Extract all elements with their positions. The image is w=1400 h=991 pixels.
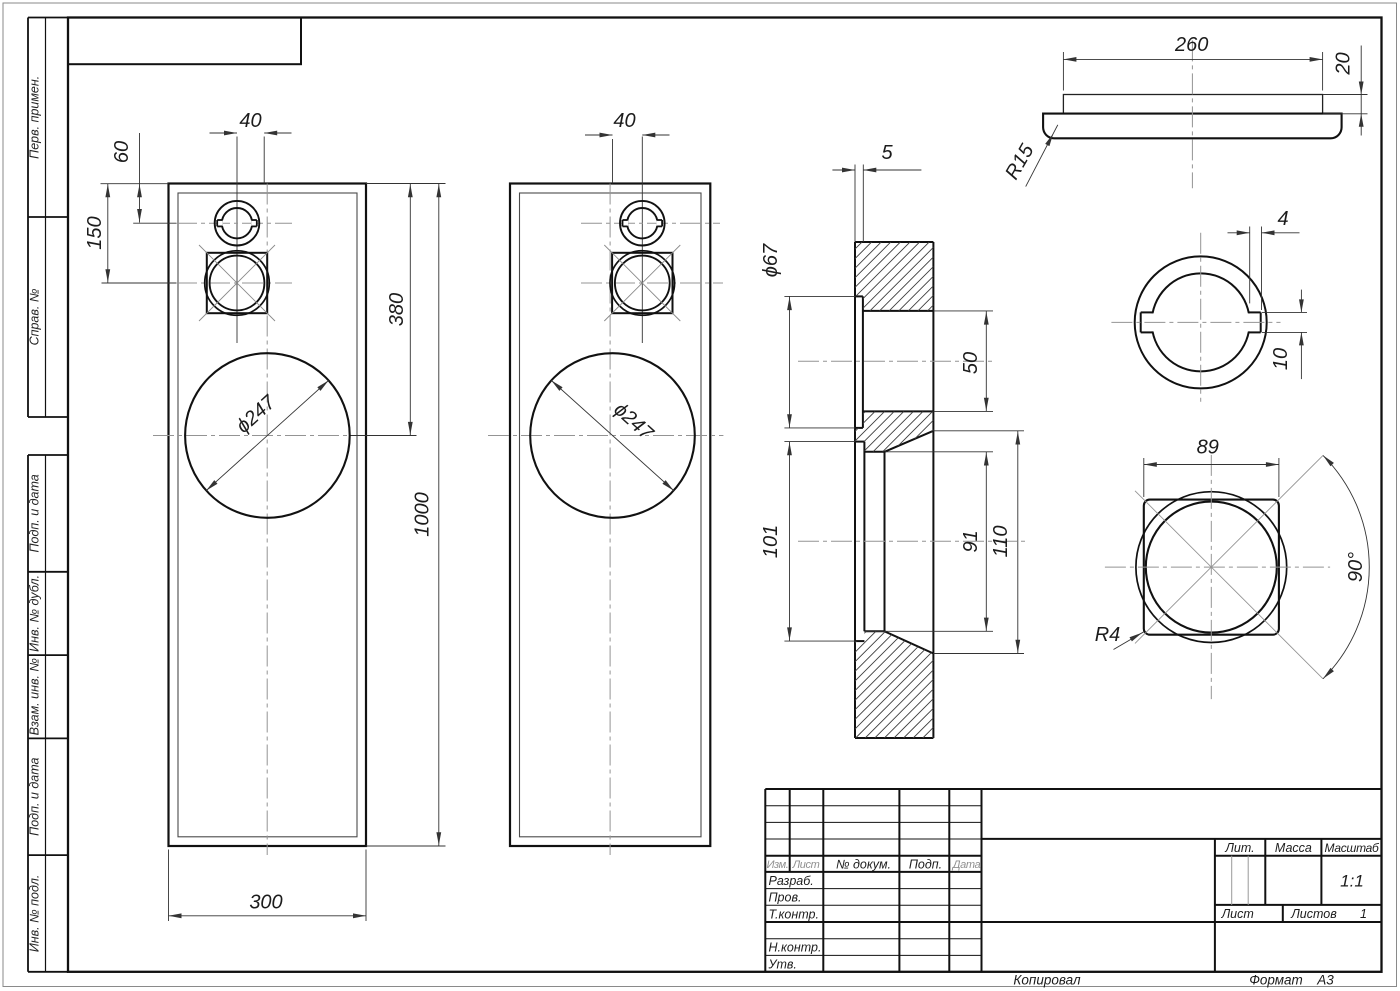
svg-text:R4: R4 [1095, 624, 1121, 646]
svg-text:Т.контр.: Т.контр. [769, 907, 819, 921]
svg-text:10: 10 [1270, 348, 1292, 370]
svg-text:Изм.: Изм. [767, 859, 789, 871]
svg-text:Перв. примен.: Перв. примен. [28, 76, 42, 159]
svg-text:Инв. № дубл.: Инв. № дубл. [28, 575, 42, 652]
svg-text:110: 110 [990, 525, 1012, 557]
svg-text:40: 40 [613, 110, 635, 132]
svg-text:89: 89 [1197, 437, 1219, 459]
svg-text:Подп. и дата: Подп. и дата [28, 758, 42, 836]
svg-text:Подп. и дата: Подп. и дата [28, 474, 42, 552]
svg-text:300: 300 [249, 892, 282, 914]
svg-text:Дата: Дата [951, 859, 981, 871]
svg-text:Лит.: Лит. [1224, 841, 1254, 855]
svg-text:Масса: Масса [1275, 841, 1312, 855]
svg-text:90°: 90° [1345, 552, 1367, 582]
svg-text:Масштаб: Масштаб [1325, 841, 1381, 855]
svg-text:40: 40 [239, 110, 261, 132]
svg-text:Подп.: Подп. [909, 857, 942, 871]
svg-text:60: 60 [111, 141, 133, 163]
svg-text:Лист: Лист [792, 859, 820, 871]
svg-text:150: 150 [84, 216, 106, 249]
svg-text:Разраб.: Разраб. [769, 874, 814, 888]
svg-text:101: 101 [760, 525, 782, 558]
svg-text:Справ. №: Справ. № [28, 288, 42, 345]
svg-text:Копировал: Копировал [1013, 973, 1081, 988]
svg-text:50: 50 [960, 352, 982, 374]
svg-text:Н.контр.: Н.контр. [769, 941, 822, 955]
svg-text:1000: 1000 [412, 492, 434, 537]
svg-text:91: 91 [960, 530, 982, 552]
svg-text:380: 380 [386, 293, 408, 326]
svg-text:Инв. № подл.: Инв. № подл. [28, 875, 42, 953]
svg-text:Формат: Формат [1249, 973, 1303, 988]
svg-text:Взам. инв. №: Взам. инв. № [28, 658, 42, 736]
svg-text:1: 1 [1360, 907, 1367, 921]
svg-text:Листов: Листов [1290, 907, 1337, 921]
svg-text:4: 4 [1277, 208, 1288, 230]
svg-text:260: 260 [1174, 34, 1208, 56]
svg-text:№ докум.: № докум. [836, 857, 891, 871]
svg-text:Лист: Лист [1221, 907, 1254, 921]
svg-text:5: 5 [881, 142, 893, 164]
svg-text:А3: А3 [1316, 973, 1334, 988]
svg-text:1:1: 1:1 [1340, 872, 1364, 891]
svg-text:Утв.: Утв. [768, 957, 797, 971]
svg-text:Пров.: Пров. [769, 891, 802, 905]
svg-text:20: 20 [1333, 52, 1355, 75]
svg-text:ϕ67: ϕ67 [760, 243, 782, 277]
